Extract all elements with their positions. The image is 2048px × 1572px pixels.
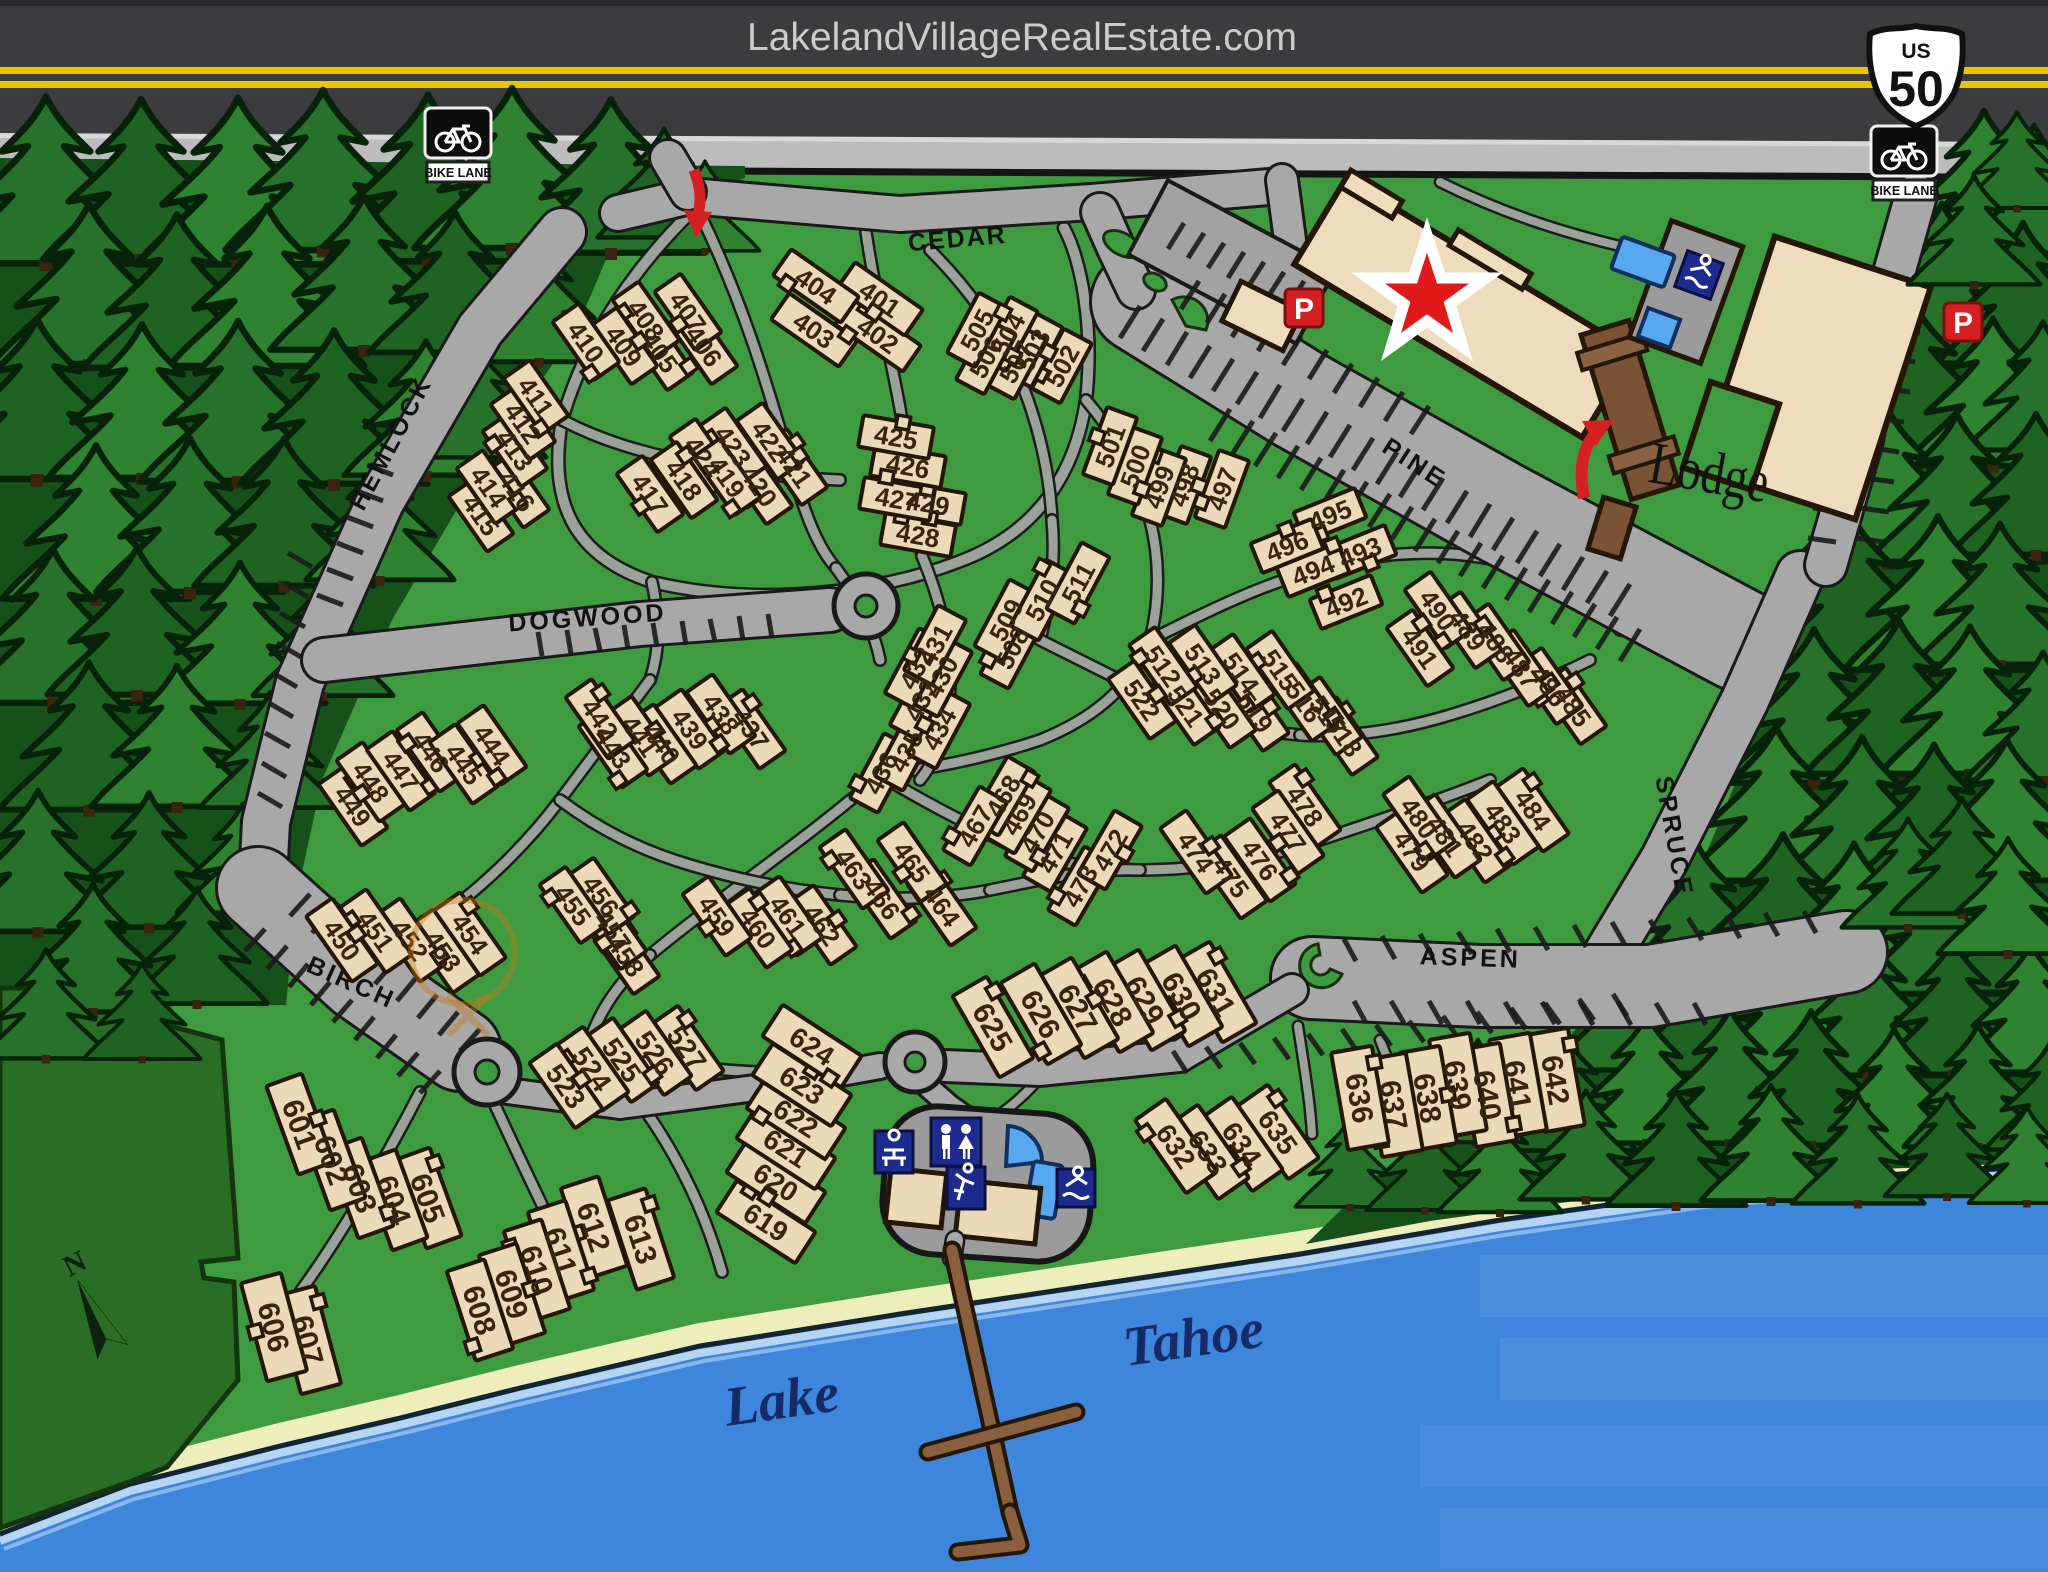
svg-text:LakelandVillageRealEstate.com: LakelandVillageRealEstate.com: [747, 16, 1297, 59]
svg-text:P: P: [1953, 307, 1973, 340]
svg-text:US: US: [1901, 40, 1930, 63]
svg-text:ASPEN: ASPEN: [1419, 942, 1521, 974]
svg-text:BIKE LANE: BIKE LANE: [424, 166, 491, 180]
svg-text:P: P: [1294, 293, 1314, 326]
svg-text:50: 50: [1888, 61, 1944, 117]
svg-text:BIKE LANE: BIKE LANE: [1870, 184, 1937, 198]
